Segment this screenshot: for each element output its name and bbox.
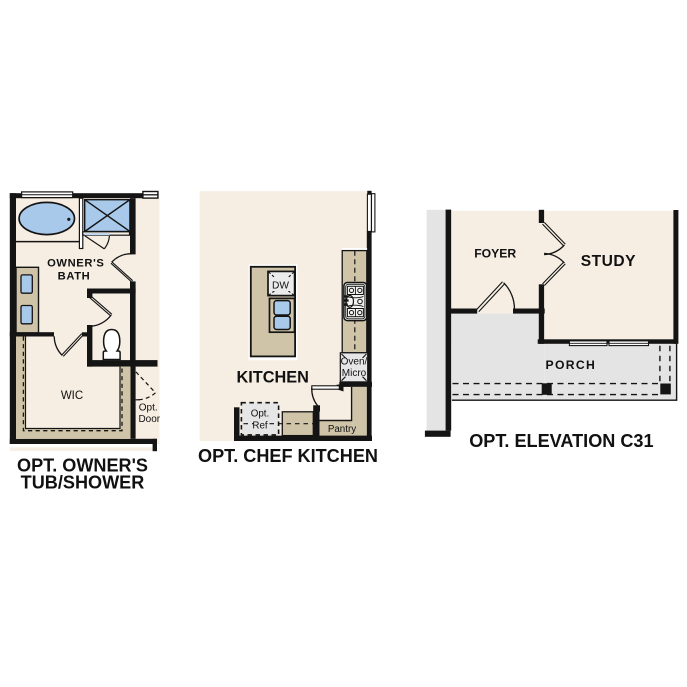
svg-text:PORCH: PORCH <box>546 358 597 372</box>
svg-text:Opt.: Opt. <box>139 402 158 413</box>
svg-text:FOYER: FOYER <box>474 246 516 260</box>
svg-text:Micro: Micro <box>342 368 367 379</box>
svg-text:DW: DW <box>272 280 289 291</box>
svg-text:STUDY: STUDY <box>581 253 636 270</box>
svg-text:OPT. ELEVATION C31: OPT. ELEVATION C31 <box>469 431 653 451</box>
svg-text:KITCHEN: KITCHEN <box>237 369 309 387</box>
svg-text:Pantry: Pantry <box>328 424 356 435</box>
svg-text:WIC: WIC <box>61 390 83 402</box>
svg-text:Opt.: Opt. <box>251 409 270 420</box>
svg-text:TUB/SHOWER: TUB/SHOWER <box>21 473 145 493</box>
svg-text:OWNER'S: OWNER'S <box>47 257 104 269</box>
svg-text:Ref: Ref <box>252 420 268 431</box>
svg-text:OPT. CHEF KITCHEN: OPT. CHEF KITCHEN <box>198 446 378 466</box>
svg-text:Door: Door <box>138 414 160 425</box>
svg-text:Oven/: Oven/ <box>341 357 368 368</box>
svg-text:BATH: BATH <box>58 271 91 283</box>
